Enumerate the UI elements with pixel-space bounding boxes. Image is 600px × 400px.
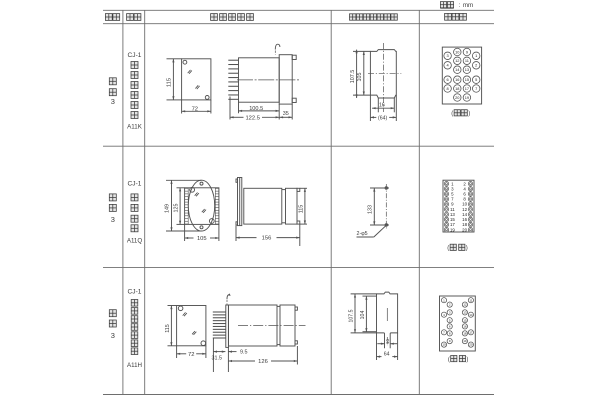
svg-text:(: (: [448, 357, 450, 363]
svg-text:8: 8: [447, 86, 449, 91]
svg-text:11: 11: [469, 298, 472, 302]
svg-text:A11H: A11H: [127, 362, 142, 369]
svg-text:125: 125: [174, 204, 180, 213]
svg-text:CJ-1: CJ-1: [128, 181, 142, 188]
svg-text:115: 115: [298, 205, 304, 214]
svg-text:9.5: 9.5: [240, 350, 248, 356]
svg-text:A11K: A11K: [127, 123, 143, 130]
svg-text:3: 3: [447, 53, 449, 58]
svg-text:9: 9: [466, 49, 468, 54]
svg-text:72: 72: [188, 352, 194, 358]
svg-text:13: 13: [465, 67, 469, 72]
svg-text:122.5: 122.5: [245, 115, 260, 121]
svg-text:A11Q: A11Q: [127, 238, 143, 245]
svg-text:12: 12: [455, 58, 459, 63]
svg-text:115: 115: [165, 324, 171, 333]
svg-text:1: 1: [475, 53, 477, 58]
svg-text:107.5: 107.5: [350, 70, 356, 84]
svg-text:2: 2: [475, 63, 477, 68]
svg-text:2-φ5: 2-φ5: [357, 231, 368, 237]
svg-text:105: 105: [357, 73, 363, 82]
svg-text:19: 19: [465, 95, 469, 100]
svg-text:CJ-1: CJ-1: [128, 289, 142, 296]
svg-text:12: 12: [463, 303, 467, 307]
svg-text:18: 18: [463, 332, 467, 336]
svg-text:20: 20: [469, 343, 473, 347]
svg-text:3: 3: [111, 215, 115, 224]
svg-text:115: 115: [167, 78, 173, 87]
svg-text:31.5: 31.5: [212, 356, 223, 362]
svg-text:(: (: [447, 246, 449, 252]
svg-text:19: 19: [463, 339, 467, 343]
svg-text:14: 14: [469, 313, 473, 317]
svg-text:20: 20: [462, 227, 467, 232]
svg-text:): ): [466, 357, 468, 363]
svg-text:5: 5: [475, 77, 477, 82]
svg-text:17: 17: [469, 330, 473, 334]
svg-text:100.5: 100.5: [249, 106, 263, 112]
svg-text:CJ-1: CJ-1: [128, 52, 142, 59]
svg-text:16: 16: [455, 77, 459, 82]
svg-text:7: 7: [475, 86, 477, 91]
svg-text:64: 64: [384, 352, 390, 358]
svg-text:6: 6: [447, 77, 449, 82]
svg-text:105: 105: [197, 236, 207, 242]
svg-text:13: 13: [463, 311, 467, 315]
svg-text:16: 16: [385, 339, 390, 345]
svg-text:3: 3: [111, 331, 115, 340]
svg-text:72: 72: [192, 106, 198, 112]
svg-text:156: 156: [262, 236, 272, 242]
svg-text:107.5: 107.5: [348, 309, 354, 322]
svg-text:133: 133: [368, 205, 374, 214]
svg-text:(64): (64): [378, 115, 387, 121]
svg-text:149: 149: [165, 204, 171, 213]
svg-text:): ): [466, 246, 468, 252]
svg-text:15: 15: [465, 77, 469, 82]
svg-text:16: 16: [379, 103, 385, 109]
svg-text:126: 126: [258, 359, 268, 365]
svg-text:3: 3: [111, 97, 115, 106]
svg-text:19: 19: [450, 227, 455, 232]
svg-text:(: (: [451, 111, 453, 117]
svg-text:10: 10: [442, 343, 446, 347]
svg-text:): ): [468, 111, 470, 117]
svg-text:104: 104: [360, 311, 366, 320]
svg-text:16: 16: [463, 325, 467, 329]
svg-text:17: 17: [465, 86, 469, 91]
svg-text:mm: mm: [463, 2, 473, 9]
svg-text:18: 18: [455, 86, 459, 91]
svg-text:11: 11: [465, 58, 469, 63]
svg-text:35: 35: [283, 111, 289, 117]
svg-text:15: 15: [463, 318, 467, 322]
